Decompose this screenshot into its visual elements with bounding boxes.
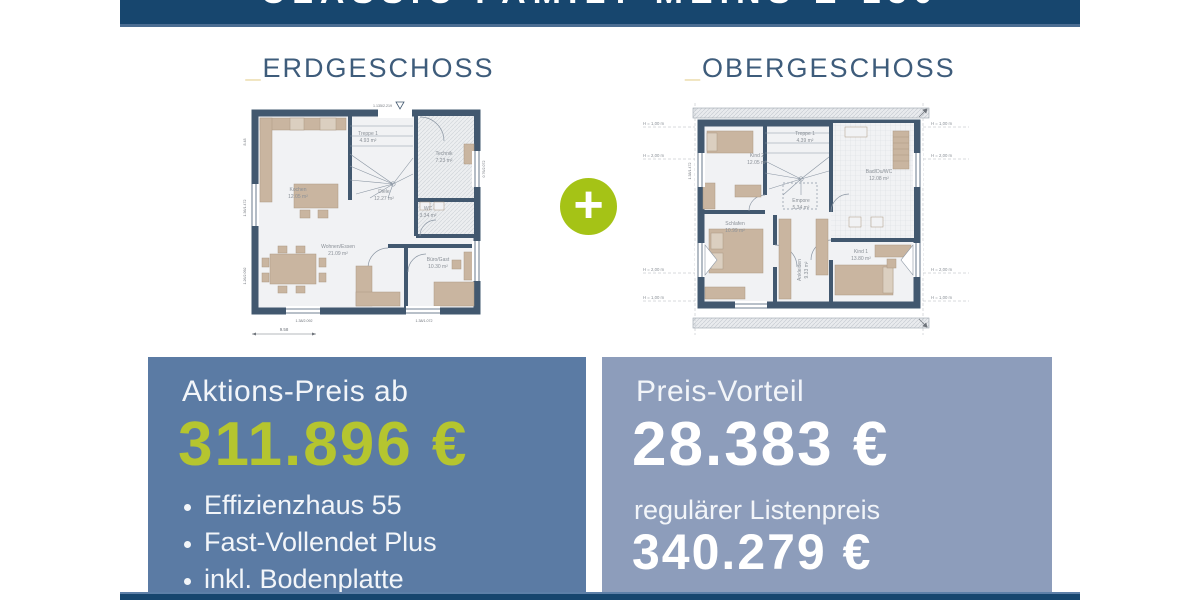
feature-list: Effizienzhaus 55 Fast-Vollendet Plus ink…: [204, 487, 437, 598]
heading-erdgeschoss-label: ERDGESCHOSS: [262, 53, 494, 83]
height-mark: H = 2,00 m: [931, 267, 953, 272]
room-area: 4.39 m²: [797, 138, 814, 144]
height-mark: H = 2,00 m: [643, 153, 665, 158]
room-label: Technik: [436, 151, 453, 157]
footer-bar: [120, 592, 1080, 600]
dim-label: 1.135/2.219: [373, 104, 392, 108]
room-label: Empore: [792, 198, 810, 204]
room-area: 21.09 m²: [328, 251, 348, 257]
dim-label: 1.26/2.092: [243, 268, 247, 285]
list-price-value: 340.279 €: [632, 523, 872, 581]
room-area: 7.23 m²: [436, 158, 453, 164]
header-bar: CLASSIC FAMILY MEINS E-130: [120, 0, 1080, 27]
dim-label: 1.38/1.472: [688, 163, 692, 180]
room-label: Schlafen: [725, 221, 745, 227]
room-label: Wohnen/Essen: [321, 244, 355, 250]
room-label: Bad/Du/WC: [866, 169, 893, 175]
room-area: 3.34 m²: [420, 213, 437, 219]
room-label: Diele: [378, 189, 390, 195]
action-price-value: 311.896 €: [178, 409, 468, 480]
room-label: Treppe 1: [358, 131, 378, 137]
room-label: Büro/Gast: [427, 257, 450, 263]
height-mark: H = 1,00 m: [643, 295, 665, 300]
height-mark: H = 1,00 m: [931, 121, 953, 126]
room-label: Treppe 1: [795, 131, 815, 137]
dim-label: 1.38/2.092: [296, 319, 313, 323]
room-area: 10.30 m²: [428, 264, 448, 270]
dim-label: 0.76/2.072: [482, 161, 486, 178]
feature-item: Effizienzhaus 55: [204, 487, 437, 524]
room-label: Kochen: [290, 187, 307, 193]
list-price-label: regulärer Listenpreis: [634, 495, 880, 526]
dim-label: 1.36/1.472: [243, 200, 247, 217]
eg-entrance-marker: [396, 102, 404, 109]
heading-obergeschoss-label: OBERGESCHOSS: [702, 53, 956, 83]
room-area: 12.05 m²: [747, 160, 767, 166]
height-mark: H = 1,00 m: [931, 295, 953, 300]
action-price-label: Aktions-Preis ab: [182, 375, 408, 409]
og-roof-band-bottom: [693, 318, 929, 328]
room-area: 4.93 m²: [360, 138, 377, 144]
price-box-advantage: Preis-Vorteil 28.383 € regulärer Listenp…: [602, 357, 1052, 592]
dim-label: 9.58: [280, 327, 289, 332]
advantage-price-value: 28.383 €: [632, 409, 889, 480]
room-label: Kind 2: [750, 153, 764, 159]
plus-symbol: +: [573, 176, 603, 234]
room-area: 12.27 m²: [374, 196, 394, 202]
height-mark: H = 2,00 m: [643, 267, 665, 272]
flyer-page: CLASSIC FAMILY MEINS E-130 _ERDGESCHOSS …: [0, 0, 1200, 600]
room-label: WC: [424, 206, 433, 212]
page-title: CLASSIC FAMILY MEINS E-130: [120, 0, 1080, 9]
room-area: 5.34 m²: [793, 205, 810, 211]
og-roof-band-top: [693, 108, 929, 118]
room-area: 12.08 m²: [869, 176, 889, 182]
price-box-action: Aktions-Preis ab 311.896 € Effizienzhaus…: [148, 357, 586, 592]
room-area: 9.33 m²: [804, 261, 810, 278]
feature-item: Fast-Vollendet Plus: [204, 524, 437, 561]
height-mark: H = 1,00 m: [643, 121, 665, 126]
room-label: Kind 1: [854, 249, 868, 255]
heading-erdgeschoss: _ERDGESCHOSS: [240, 52, 500, 84]
underscore-accent: _: [685, 53, 702, 83]
height-mark: H = 2,00 m: [931, 153, 953, 158]
dim-label: 8.48: [243, 139, 247, 146]
room-area: 10.99 m²: [725, 228, 745, 234]
heading-obergeschoss: _OBERGESCHOSS: [685, 52, 945, 84]
floorplan-obergeschoss: H = 1,00 m H = 2,00 m H = 2,00 m H = 1,0…: [635, 95, 975, 345]
floorplan-erdgeschoss: Kochen 12.05 m² Treppe 1 4.93 m² Technik…: [238, 96, 490, 346]
room-area: 13.80 m²: [851, 256, 871, 262]
dim-label: 1.38/1.072: [416, 319, 433, 323]
room-label: Ankleiden: [797, 259, 803, 281]
underscore-accent: _: [245, 53, 262, 83]
plus-icon: +: [560, 178, 617, 235]
room-area: 12.05 m²: [288, 194, 308, 200]
advantage-label: Preis-Vorteil: [636, 375, 804, 409]
